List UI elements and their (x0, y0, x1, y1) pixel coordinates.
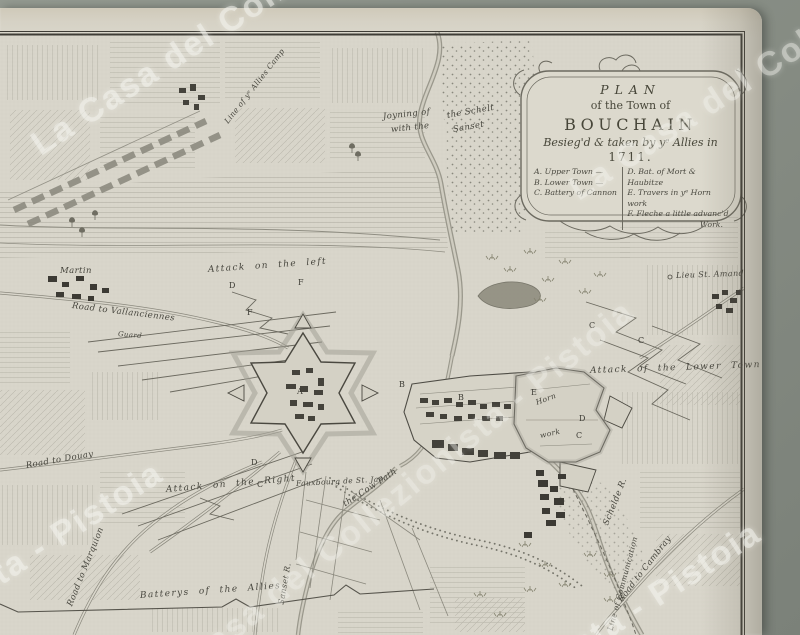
photo-background: Line of yᵉ Allies CampJoyning ofwith the… (0, 0, 800, 635)
paper-edge-shadow (0, 8, 762, 635)
